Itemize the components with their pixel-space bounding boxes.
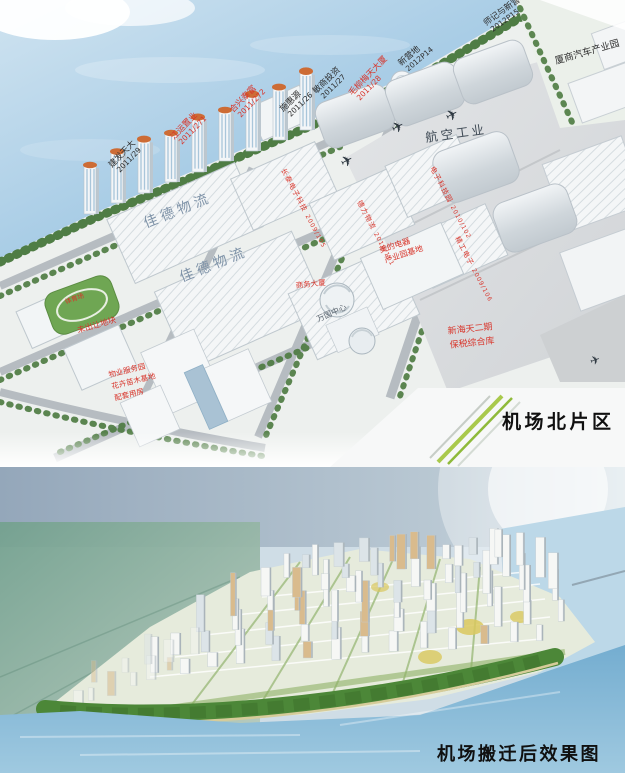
relocation-svg: 机场搬迁后效果图: [0, 467, 625, 773]
bottom-caption: 机场搬迁后效果图: [437, 743, 601, 765]
north-district-svg: ✈ ✈ ✈ ✈ 建发天大2011/29 江运: [0, 0, 625, 467]
airport-north-district-rendering: ✈ ✈ ✈ ✈ 建发天大2011/29 江运: [0, 0, 625, 467]
top-caption: 机场北片区: [502, 410, 615, 433]
page: ✈ ✈ ✈ ✈ 建发天大2011/29 江运: [0, 0, 625, 784]
post-relocation-rendering: 机场搬迁后效果图: [0, 467, 625, 773]
